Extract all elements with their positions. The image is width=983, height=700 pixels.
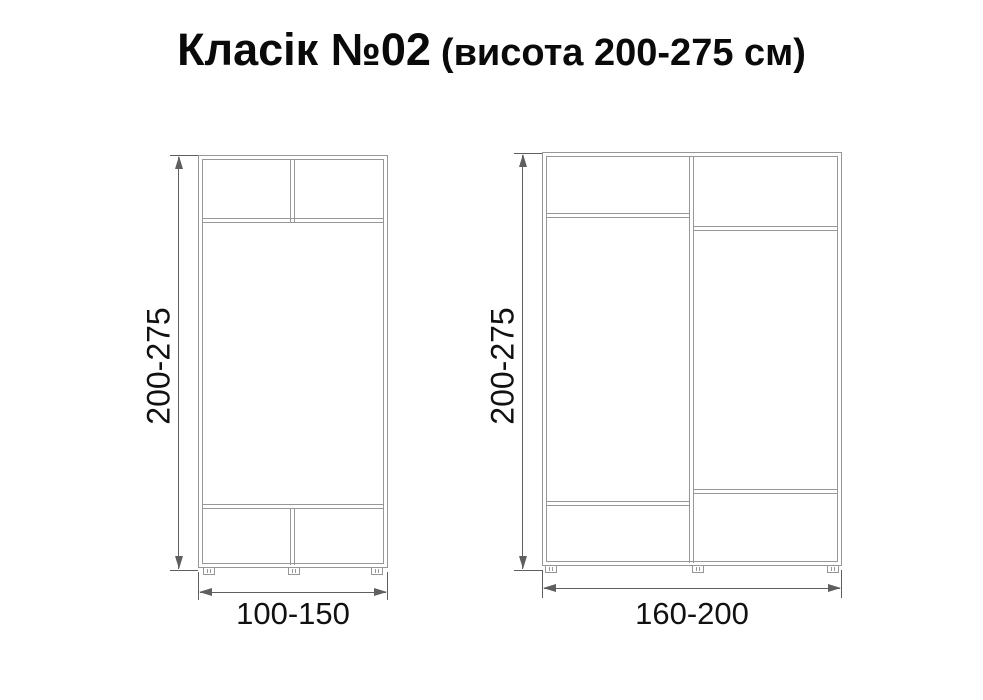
foot-right [827, 566, 839, 573]
title-main: Класік №02 [177, 24, 431, 75]
left-upper-shelf [547, 213, 689, 218]
width-dimension-line [544, 588, 840, 589]
title-sub: (висота 200-275 см) [441, 32, 806, 74]
arrowhead-down-icon [175, 556, 183, 569]
page-title: Класік №02(висота 200-275 см) [0, 24, 983, 76]
foot-right [371, 568, 383, 575]
arrowhead-up-icon [175, 156, 183, 169]
height-dimension-label: 200-275 [485, 307, 522, 424]
width-dimension-label: 100-150 [236, 596, 350, 632]
height-dimension-line [522, 155, 523, 569]
foot-middle [288, 568, 300, 575]
arrowhead-right-icon [828, 584, 841, 592]
center-divider [689, 157, 694, 563]
upper-shelf [203, 218, 383, 223]
arrowhead-left-icon [199, 588, 212, 596]
right-upper-shelf [694, 226, 837, 231]
dim-tick-bottom [514, 570, 542, 571]
height-dimension-label: 200-275 [141, 307, 178, 424]
width-dimension-label: 160-200 [635, 596, 749, 632]
wardrobe-small-drawing [198, 155, 388, 568]
bottom-compartment-divider [290, 509, 295, 565]
right-lower-shelf [694, 489, 837, 494]
width-dimension-line [200, 592, 386, 593]
arrowhead-left-icon [543, 584, 556, 592]
dim-ext-right [841, 570, 842, 598]
arrowhead-down-icon [519, 556, 527, 569]
left-lower-shelf [547, 501, 689, 506]
arrowhead-up-icon [519, 154, 527, 167]
foot-left [545, 566, 557, 573]
arrowhead-right-icon [374, 588, 387, 596]
diagram-page: Класік №02(висота 200-275 см) 200-275 10… [0, 0, 983, 700]
top-compartment-divider [290, 160, 295, 223]
foot-left [203, 568, 215, 575]
dim-ext-right [387, 572, 388, 600]
foot-middle [692, 566, 704, 573]
dim-tick-bottom [170, 570, 198, 571]
wardrobe-large-drawing [542, 152, 842, 566]
height-dimension-line [178, 157, 179, 569]
